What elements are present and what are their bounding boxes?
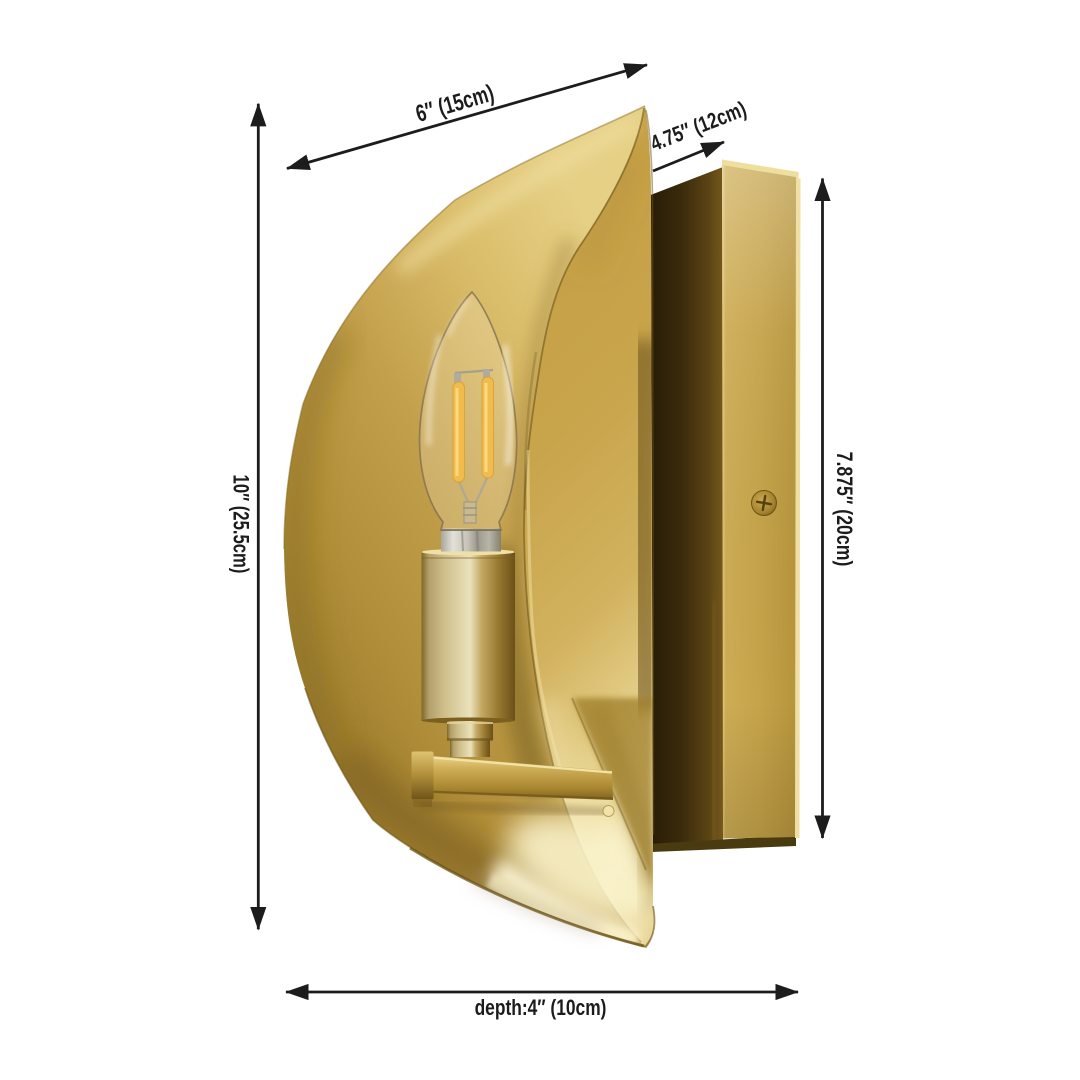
svg-text:7.875″ (20cm): 7.875″ (20cm) [831, 452, 855, 567]
svg-text:depth:4″ (10cm): depth:4″ (10cm) [475, 996, 607, 1020]
svg-text:10″ (25.5cm): 10″ (25.5cm) [228, 475, 253, 574]
svg-text:4.75″ (12cm): 4.75″ (12cm) [647, 97, 750, 156]
